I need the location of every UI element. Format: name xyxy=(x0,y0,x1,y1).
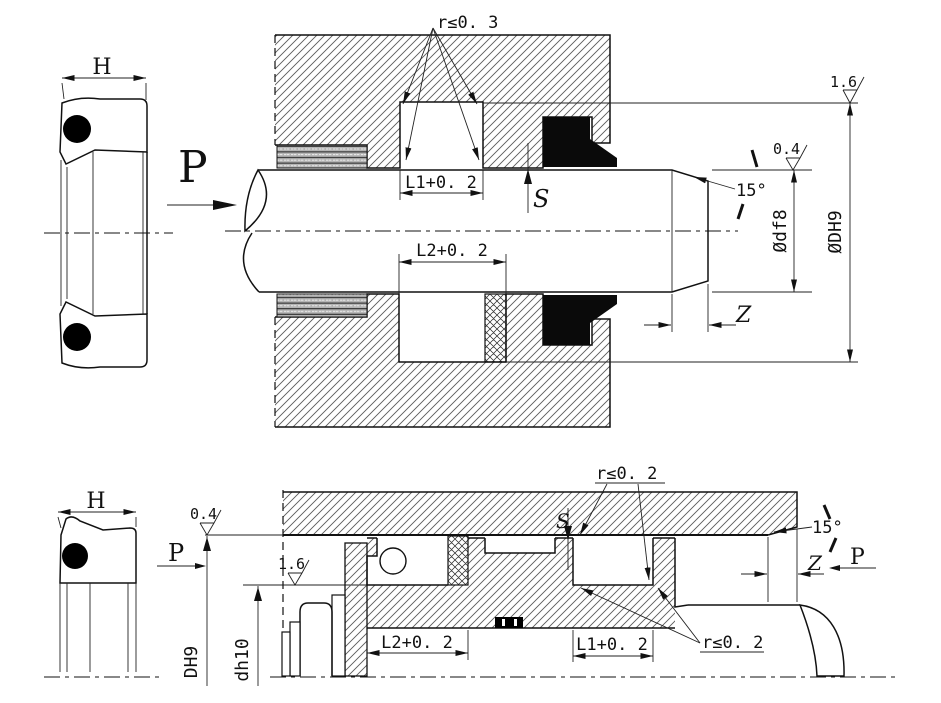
oring xyxy=(62,543,88,569)
bottom-view: H 0.4 DH9 P 1.6 dh10 xyxy=(44,464,900,686)
washer-2 xyxy=(290,622,300,676)
finish-groove-symbol: 1.6 xyxy=(830,73,864,103)
radius-note-bottom-label: r≤0. 2 xyxy=(702,633,763,653)
rod-stub xyxy=(282,632,290,676)
oring-in-groove xyxy=(380,548,406,574)
drawing-canvas: H P xyxy=(0,0,941,703)
pressure-left-label: P xyxy=(168,539,184,567)
groove2-dimension-bottom: L2+0. 2 xyxy=(367,630,468,660)
guide-element xyxy=(495,617,523,628)
groove-diameter-label: dh10 xyxy=(232,638,253,681)
housing-upper xyxy=(275,35,617,168)
chamfer-length-dim-top: Z xyxy=(644,284,752,332)
seal-section-in-groove xyxy=(485,294,506,362)
oring-bottom xyxy=(63,323,91,351)
piston xyxy=(367,536,688,628)
groove1-dimension-bottom: L1+0. 2 xyxy=(573,630,653,662)
groove-diameter-dim: ØDH9 1.6 xyxy=(825,73,864,362)
bore-diameter-label: DH9 xyxy=(181,646,202,679)
lock-nut xyxy=(300,603,332,676)
groove2-dim-label: L2+0. 2 xyxy=(381,633,453,653)
seal-installation-drawing: H P xyxy=(0,0,941,703)
groove-diameter-label: ØDH9 xyxy=(825,210,846,253)
radius-note-label: r≤0. 3 xyxy=(437,13,498,33)
retainer-plate xyxy=(345,543,367,676)
pressure-indicator-top: P xyxy=(167,142,237,210)
groove1-dimension-top: L1+0. 2 xyxy=(400,170,483,200)
guide-strip-top xyxy=(277,145,367,168)
finish-bore-label: 0.4 xyxy=(190,505,217,523)
pressure-label: P xyxy=(178,142,208,193)
rod-diameter-dim: Ødf8 0.4 xyxy=(712,140,812,292)
piston-seal-cross-section xyxy=(44,517,162,677)
washer xyxy=(332,595,345,676)
h-dim-label: H xyxy=(86,489,105,514)
chamfer-angle-label: 15° xyxy=(812,518,843,538)
h-dim-label: H xyxy=(92,55,111,80)
chamfer-angle-top: 15° xyxy=(694,150,767,219)
oring-top xyxy=(63,115,91,143)
pressure-arrow xyxy=(213,200,237,210)
radius-note-top-label: r≤0. 2 xyxy=(596,464,657,484)
clearance-label: S xyxy=(556,509,570,533)
guide-strip-bottom xyxy=(277,294,367,317)
chamfer-length-label: Z xyxy=(807,551,823,575)
groove1-dim-label: L1+0. 2 xyxy=(576,635,648,655)
rod-end-lens xyxy=(800,605,844,676)
finish-groove-label: 1.6 xyxy=(830,73,857,91)
finish-rod-symbol: 0.4 xyxy=(773,140,807,170)
h-dimension-top: H xyxy=(62,55,146,100)
rod-diameter-label: Ødf8 xyxy=(770,209,791,252)
rod-seal-cross-section xyxy=(44,98,173,368)
pressure-right-label: P xyxy=(850,545,865,570)
h-dimension-bottom: H xyxy=(58,489,136,528)
groove2-dim-label: L2+0. 2 xyxy=(416,241,488,261)
top-view: H P xyxy=(44,13,864,427)
chamfer-length-label: Z xyxy=(735,303,752,328)
groove1-dim-label: L1+0. 2 xyxy=(405,173,477,193)
piston-rod xyxy=(225,170,738,292)
chamfer-angle-label: 15° xyxy=(736,181,767,201)
finish-groove-label: 1.6 xyxy=(278,555,305,573)
groove2-dimension-top: L2+0. 2 xyxy=(399,241,506,294)
pressure-indicator-right: P xyxy=(829,545,876,571)
rod-end-lens xyxy=(245,170,267,231)
chamfer-length-dim-bottom: Z xyxy=(741,529,824,602)
seal-section-in-groove xyxy=(448,536,468,585)
clearance-label: S xyxy=(533,185,549,213)
finish-rod-label: 0.4 xyxy=(773,140,800,158)
housing-lower xyxy=(275,294,617,427)
pressure-indicator-left: P xyxy=(157,539,206,569)
